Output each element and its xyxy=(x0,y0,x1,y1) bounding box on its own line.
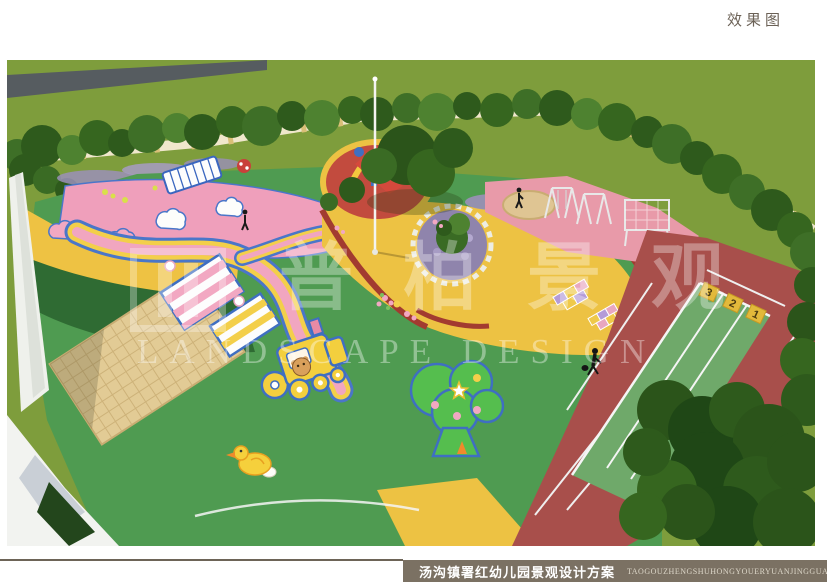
caption-title-cn: 汤沟镇署红幼儿园景观设计方案 xyxy=(419,562,615,581)
footer-rule-line xyxy=(0,559,403,561)
presentation-page: 效果图 xyxy=(0,0,827,585)
caption-pinyin: TAOGOUZHENGSHUHONGYOUERYUANJINGGUANSHEJI… xyxy=(627,567,827,576)
caption-bar: 汤沟镇署红幼儿园景观设计方案 TAOGOUZHENGSHUHONGYOUERYU… xyxy=(403,560,827,582)
page-title: 效果图 xyxy=(727,9,784,30)
playground-scene: 3 2 1 xyxy=(7,60,815,546)
mushroom-item xyxy=(237,159,251,173)
rendering-image: 3 2 1 xyxy=(7,60,815,546)
